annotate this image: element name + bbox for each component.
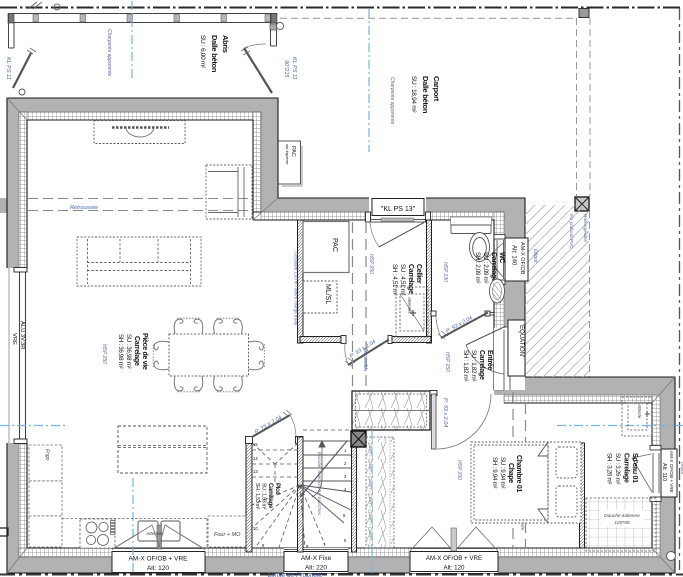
svg-text:Sd'eau 01: Sd'eau 01 [631,453,638,483]
svg-text:Carrelage: Carrelage [478,350,485,380]
svg-text:Dalle béton: Dalle béton [210,35,219,73]
svg-text:Four + MO: Four + MO [214,532,241,538]
svg-text:Attente: Attente [637,403,642,419]
svg-text:ML/SL: ML/SL [324,284,331,304]
svg-text:Douche italienne: Douche italienne [604,513,640,519]
svg-text:ALU 3V.3R: ALU 3V.3R [19,321,25,349]
svg-text:SU : 9,94 m²: SU : 9,94 m² [499,457,506,488]
svg-text:HSP 250: HSP 250 [456,460,462,480]
svg-text:SH : 9,94 m²: SH : 9,94 m² [491,457,498,488]
svg-text:13: 13 [253,469,258,474]
svg-text:SU : 2,09 m²: SU : 2,09 m² [482,252,489,283]
svg-text:Alt: 140: Alt: 140 [511,245,517,266]
svg-text:KL PS 11: KL PS 11 [5,57,11,80]
svg-text:SU : 4,51 m²: SU : 4,51 m² [399,264,406,295]
svg-text:Carrelage: Carrelage [407,264,414,294]
svg-text:Alt: 220: Alt: 220 [305,565,327,572]
svg-text:15: 15 [253,442,258,447]
svg-text:"KL PS 13": "KL PS 13" [381,206,416,213]
svg-text:SH : 4,51 m²: SH : 4,51 m² [391,264,398,295]
svg-text:SH : 1,53 m²: SH : 1,53 m² [254,483,260,510]
svg-text:Chape: Chape [507,463,514,483]
svg-text:Alt: 120: Alt: 120 [147,565,169,572]
svg-text:AM-X Fixe: AM-X Fixe [301,555,332,562]
svg-text:Disponible: Disponible [362,348,368,372]
svg-text:Entrée: Entrée [486,350,493,370]
svg-text:Carrelage: Carrelage [133,336,140,366]
svg-text:Dalle béton: Dalle béton [421,76,430,114]
svg-text:14: 14 [253,456,258,461]
svg-text:Pièce de vie: Pièce de vie [141,333,148,370]
svg-text:AM-X OF/OB: AM-X OF/OB [519,242,525,275]
svg-text:Chambre 01: Chambre 01 [515,455,522,492]
svg-text:SH : 2,09 m²: SH : 2,09 m² [474,252,481,283]
svg-text:Retroussée: Retroussée [70,205,98,211]
svg-text:PAC: PAC [331,238,338,252]
svg-text:HSP 250: HSP 250 [444,352,450,372]
svg-text:10: 10 [253,526,258,531]
svg-text:SH : 36,98 m²: SH : 36,98 m² [117,334,124,369]
svg-text:Dépot: Dépot [532,249,538,263]
svg-text:Carrelage: Carrelage [623,453,630,483]
svg-text:VRE: VRE [11,333,17,345]
svg-text:Occultant 1,60 m / rentre char: Occultant 1,60 m / rentre charge d'eau [294,252,299,326]
svg-text:WC: WC [498,252,505,263]
svg-text:SU : 1,53 m²: SU : 1,53 m² [261,483,267,510]
svg-text:Plcd: Plcd [274,483,280,495]
svg-text:HSP 250: HSP 250 [101,344,107,364]
svg-text:Escalier avec contre-marches: Escalier avec contre-marches [316,452,322,516]
svg-text:90*215: 90*215 [283,60,289,78]
svg-text:Alt: 110: Alt: 110 [661,463,667,481]
svg-text:AM-X OF/OB + VRE: AM-X OF/OB + VRE [128,556,188,563]
svg-text:Fix plafond PVC: Fix plafond PVC [568,214,574,249]
svg-text:KL PS 11: KL PS 11 [291,57,297,80]
svg-text:Rallongéable: Rallongéable [582,214,588,242]
svg-text:AM-X OF/OB + VRE: AM-X OF/OB + VRE [426,555,482,562]
svg-text:SU : 3,26 m²: SU : 3,26 m² [614,453,621,484]
svg-text:Limite de Propriété: Limite de Propriété [268,572,323,577]
svg-text:Abris: Abris [221,35,230,53]
svg-text:Cellier: Cellier [415,264,422,284]
svg-text:120*90: 120*90 [614,520,630,526]
svg-text:SU : 6,00 m²: SU : 6,00 m² [199,35,206,69]
svg-text:SU : 18,94 m²: SU : 18,94 m² [410,76,417,113]
svg-text:SU : 36,98 m²: SU : 36,98 m² [125,334,132,369]
svg-text:Charpente apparente: Charpente apparente [106,29,112,76]
svg-text:Carrelage: Carrelage [267,483,273,509]
svg-text:Alt: 120: Alt: 120 [444,565,466,572]
svg-text:sur équerre: sur équerre [285,144,290,165]
svg-text:Frigo: Frigo [44,449,50,461]
svg-text:SH : 1,82 m²: SH : 1,82 m² [462,350,469,381]
svg-text:P: 93 x 2,04: P: 93 x 2,04 [442,398,448,427]
svg-text:SH : 3,26 m²: SH : 3,26 m² [606,453,613,484]
svg-text:AM-X OF/OB + VRE: AM-X OF/OB + VRE [669,451,674,493]
svg-text:HSP 230: HSP 230 [442,262,448,282]
svg-text:SU : 1,82 m²: SU : 1,82 m² [470,350,477,381]
svg-text:Carport: Carport [432,76,441,102]
svg-text:HSP 250: HSP 250 [368,254,374,274]
svg-text:Attentes: Attentes [407,296,412,314]
svg-text:Charpente apparente: Charpente apparente [389,77,395,124]
svg-text:Carrelage: Carrelage [490,252,497,282]
svg-text:'EQUATION': 'EQUATION' [518,324,524,357]
